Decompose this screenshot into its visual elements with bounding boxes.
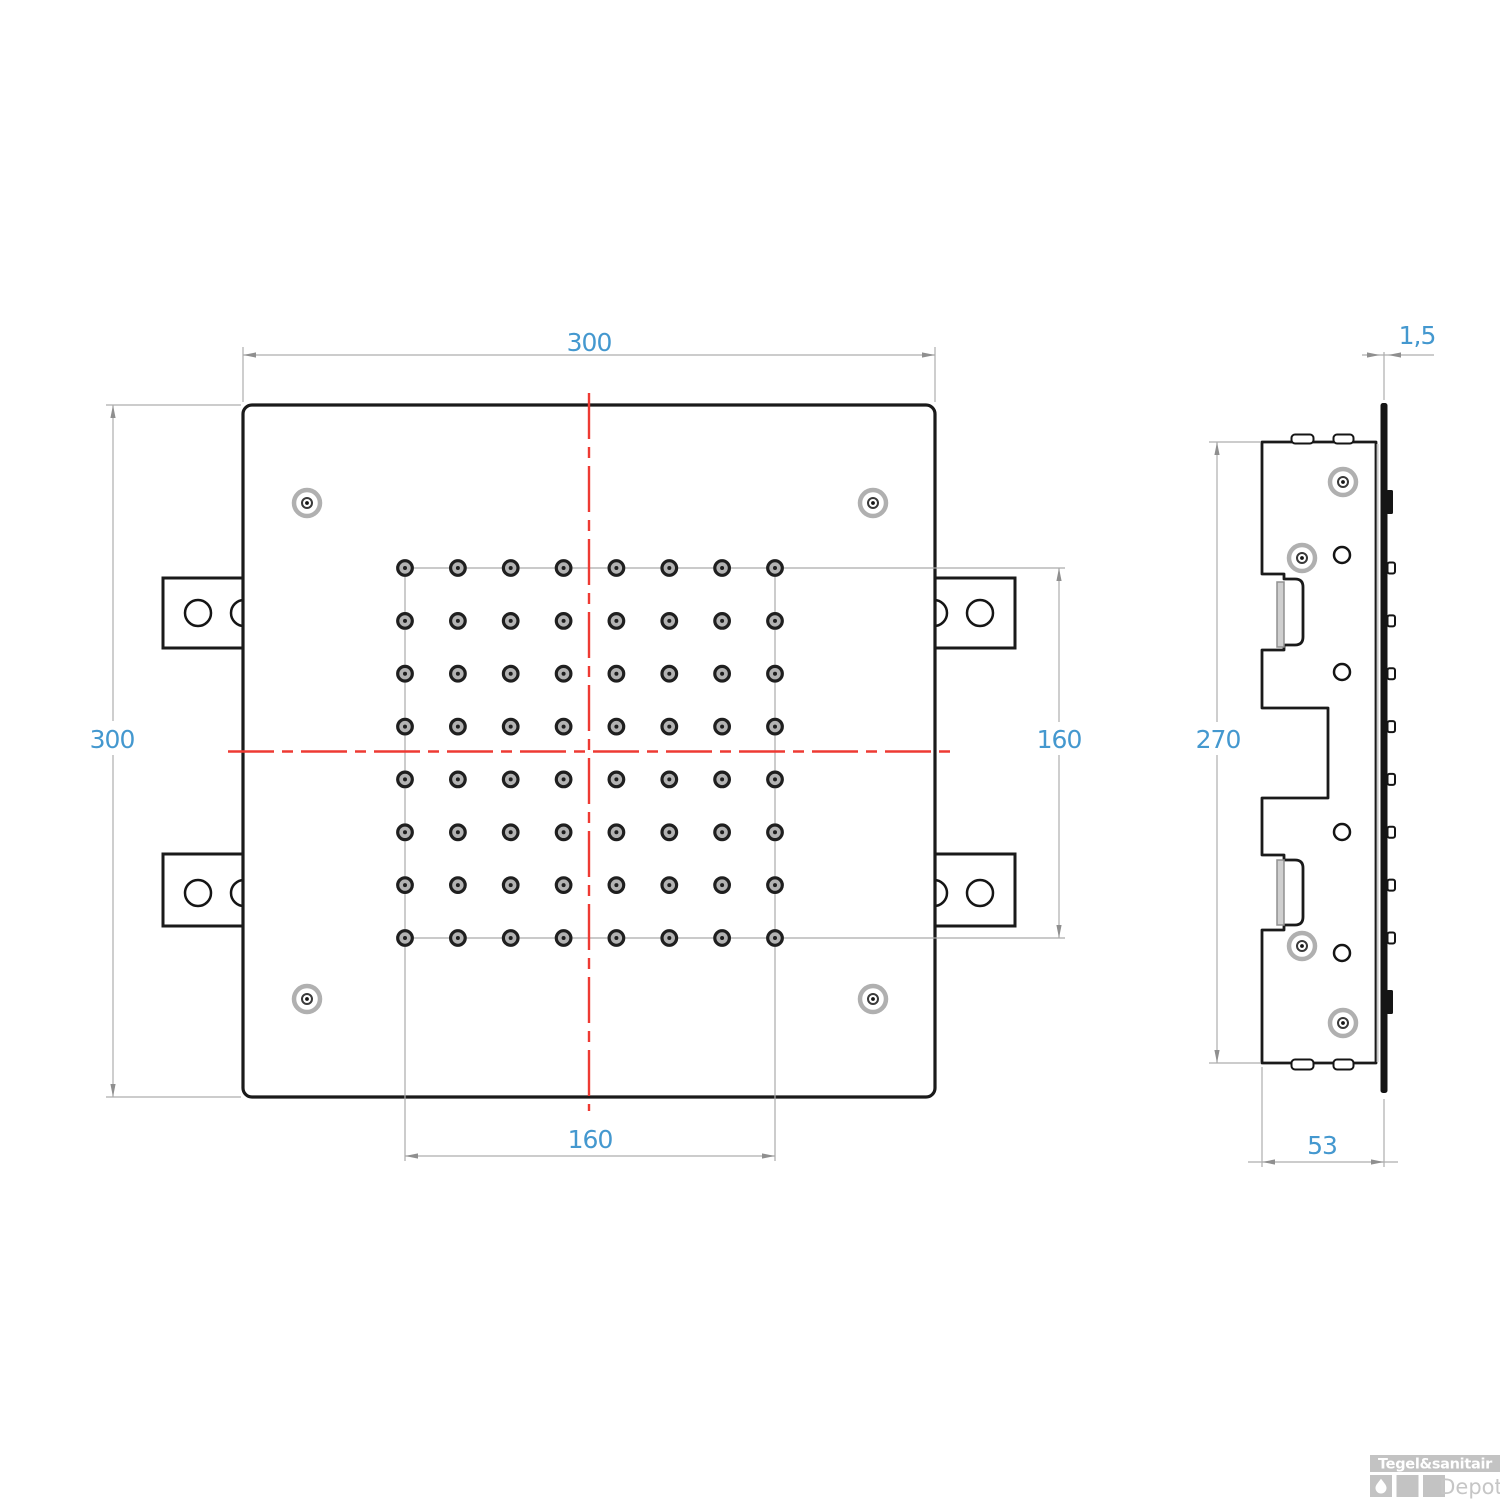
dim-front-height: 300: [86, 405, 241, 1097]
bracket-edge-top: [1277, 582, 1284, 647]
side-hole: [1334, 945, 1350, 961]
side-housing-outline: [1262, 442, 1376, 1063]
corner-screw: [294, 986, 320, 1012]
dim-label-side-depth: 53: [1307, 1131, 1337, 1160]
dim-side-depth: 53: [1248, 1067, 1398, 1167]
dim-label-side-height: 270: [1196, 725, 1241, 754]
side-screw: [1289, 933, 1315, 959]
side-hole: [1334, 664, 1350, 680]
corner-screw: [294, 490, 320, 516]
dim-label-nozzle-field-height: 160: [1037, 725, 1082, 754]
watermark-brand-text: Tegel&sanitair: [1378, 1457, 1493, 1473]
dim-side-height: 270: [1190, 442, 1260, 1063]
technical-drawing-page: 300 300: [0, 0, 1500, 1500]
dim-label-front-width: 300: [567, 328, 612, 357]
side-nozzle-bumps: [1388, 563, 1396, 944]
retaining-tab-top: [1387, 490, 1394, 514]
retaining-tab-bottom: [1387, 990, 1394, 1014]
dim-label-nozzle-field-width: 160: [568, 1125, 613, 1154]
side-hole: [1334, 824, 1350, 840]
dim-label-front-height: 300: [90, 725, 135, 754]
bracket-edge-bottom: [1277, 860, 1284, 925]
dim-label-plate-thickness: 1,5: [1399, 321, 1436, 350]
side-view: 1,5 270 53: [1190, 321, 1435, 1167]
corner-screw: [860, 986, 886, 1012]
side-screw: [1330, 1010, 1356, 1036]
corner-screw: [860, 490, 886, 516]
dim-nozzle-field-height: 160: [1032, 568, 1086, 938]
side-faceplate: [1381, 403, 1388, 1093]
dim-nozzle-field-width: 160: [405, 1125, 775, 1159]
watermark-logo: Tegel&sanitair Depot: [1370, 1455, 1500, 1499]
side-hole: [1334, 547, 1350, 563]
side-screw: [1330, 469, 1356, 495]
watermark-sub-text: Depot: [1439, 1475, 1500, 1499]
shower-head-technical-drawing: 300 300: [0, 0, 1500, 1500]
front-view: 300 300: [86, 328, 1086, 1161]
dim-front-width: 300: [243, 328, 935, 402]
side-screw: [1289, 545, 1315, 571]
dim-plate-thickness: 1,5: [1362, 321, 1435, 400]
